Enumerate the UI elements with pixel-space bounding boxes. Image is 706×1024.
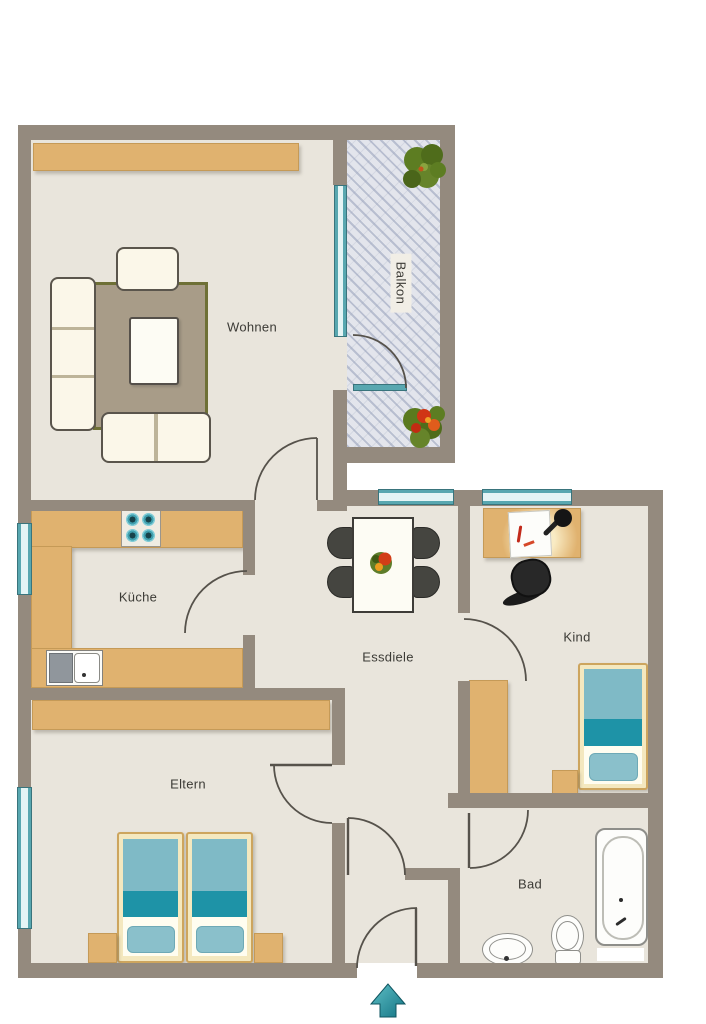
room-label-kind: Kind [563,630,590,645]
wall-kind-west-b [458,681,470,800]
entrance-arrow-icon [371,984,405,1017]
eltern-nightstand-left [88,933,117,963]
stove [121,508,161,547]
sofa-left [50,277,96,431]
room-label-bad: Bad [518,877,542,892]
wall-balcony-divider-bottom [333,390,347,511]
eltern-bed-left [117,832,184,963]
armchair [116,247,179,291]
eltern-nightstand-right [254,933,283,963]
room-label-balkon: Balkon [391,254,412,313]
eltern-bed-right [186,832,253,963]
burner-icon [142,529,155,542]
wall-kind-south [448,793,663,808]
dining-chair [327,527,354,559]
wall-eltern-east-b [332,823,345,963]
window-essdiele [378,489,454,505]
wall-bottom-left [18,963,357,978]
room-label-eltern: Eltern [170,777,206,792]
coffee-table [129,317,179,385]
sideboard [33,143,299,171]
wall-balcony-divider-top [333,140,347,185]
kitchen-sink [46,650,103,686]
wall-eltern-north [18,688,345,700]
wall-bad-west [448,868,460,963]
bathtub [595,828,648,946]
wall-kind-west-a [458,506,470,613]
wall-wohnen-south-a [18,500,255,511]
eltern-wardrobe [32,700,330,730]
kind-wardrobe [469,680,508,802]
kind-bed [578,663,648,790]
wall-kitchen-east-b [243,635,255,692]
sofa-bottom [101,412,211,463]
kind-desk [483,508,581,558]
room-label-wohnen: Wohnen [227,320,277,335]
dining-chair [327,566,354,598]
burner-icon [142,513,155,526]
wall-eltern-east-a [332,700,345,765]
bath-mat [597,948,644,961]
window-balcony [334,185,347,337]
wall-top [18,125,455,140]
window-eltern [17,787,32,929]
wall-balcony-right [440,125,455,463]
kitchen-counter-left [31,546,72,650]
dining-table [352,517,414,613]
balcony-door-leaf [353,384,407,391]
wall-wohnen-south-b [317,500,345,511]
window-kitchen [17,523,32,595]
burner-icon [126,529,139,542]
wall-balcony-bottom [345,447,455,463]
paper-sheet [508,510,552,558]
floor-plan: Wohnen Balkon Küche Essdiele Kind Eltern… [0,0,706,1024]
room-label-kueche: Küche [119,590,157,605]
room-label-essdiele: Essdiele [362,650,414,665]
window-kind [482,489,572,505]
exterior-gap-strip [345,463,663,490]
wall-right [648,490,663,978]
wall-kitchen-east-a [243,508,255,575]
wall-bottom-right [417,963,663,978]
exterior-gap-top-right [455,125,706,463]
burner-icon [126,513,139,526]
